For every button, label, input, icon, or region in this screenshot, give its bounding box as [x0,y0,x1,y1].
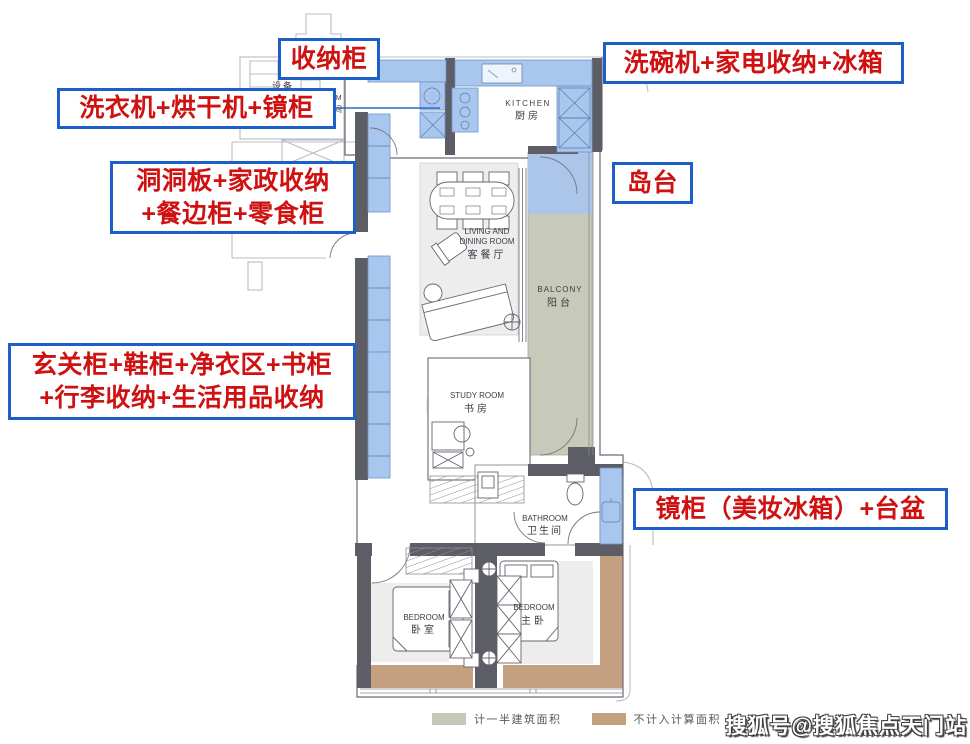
callout-text-line2: +行李收纳+生活用品收纳 [39,382,324,415]
bedroom-label-en: BEDROOM [403,613,445,622]
island-highlight [528,152,592,214]
bedroom-label-zh: 卧室 [411,623,437,636]
legend-item-excluded-area: 不计入计算面积 [592,711,722,727]
legend-item-half-area: 计一半建筑面积 [432,711,562,727]
legend-swatch-half-area [432,713,466,725]
floorplan-infographic: KITCHEN 厨房 LIVING AND DINING ROOM 客餐厅 BA… [0,0,970,744]
callout-text: 岛台 [627,167,678,200]
balcony-label-zh: 阳台 [547,296,573,309]
callout-pegboard-pantry: 洞洞板+家政收纳 +餐边柜+零食柜 [110,161,356,234]
callout-text: 洗碗机+家电收纳+冰箱 [624,47,884,80]
kitchen-label-en: KITCHEN [505,99,551,108]
legend-label-half-area: 计一半建筑面积 [474,711,562,727]
study-label-en: STUDY ROOM [450,391,504,400]
watermark: 搜狐号@搜狐焦点天门站 [726,710,967,740]
sliding-door [519,168,526,342]
balcony-label-en: BALCONY [537,285,582,294]
callout-text: 镜柜（美妆冰箱）+台盆 [655,493,925,526]
master-label-zh: 主卧 [521,614,547,627]
bathroom-label-zh: 卫生间 [527,524,563,537]
kitchen-label-zh: 厨房 [515,109,541,122]
callout-island: 岛台 [612,162,693,204]
callout-mirror-cabinet: 镜柜（美妆冰箱）+台盆 [633,488,948,530]
living-label-en1: LIVING AND [465,227,510,236]
callout-text: 洗衣机+烘干机+镜柜 [79,92,313,125]
living-label-en2: DINING ROOM [459,237,514,246]
study-label-zh: 书房 [464,402,490,415]
hallway-wardrobe [430,476,524,503]
bay-window-left [371,665,473,688]
callout-entry-storage: 玄关柜+鞋柜+净衣区+书柜 +行李收纳+生活用品收纳 [8,343,356,420]
callout-text-line2: +餐边柜+零食柜 [141,198,324,231]
callout-washer-dryer: 洗衣机+烘干机+镜柜 [57,88,336,129]
bottom-windows [360,689,623,693]
bedroom-wardrobe [406,548,472,574]
master-label-en: BEDROOM [513,603,555,612]
living-label-zh: 客餐厅 [468,248,507,261]
callout-text: 收纳柜 [291,43,368,76]
legend-swatch-excluded-area [592,713,626,725]
legend: 计一半建筑面积 不计入计算面积 [432,711,721,727]
callout-text-line1: 洞洞板+家政收纳 [136,165,330,198]
bathroom-label-en: BATHROOM [522,514,568,523]
legend-label-excluded-area: 不计入计算面积 [634,711,722,727]
callout-text-line1: 玄关柜+鞋柜+净衣区+书柜 [32,349,332,382]
callout-storage-cabinet: 收纳柜 [278,38,380,80]
callout-dishwasher-fridge: 洗碗机+家电收纳+冰箱 [603,42,904,84]
